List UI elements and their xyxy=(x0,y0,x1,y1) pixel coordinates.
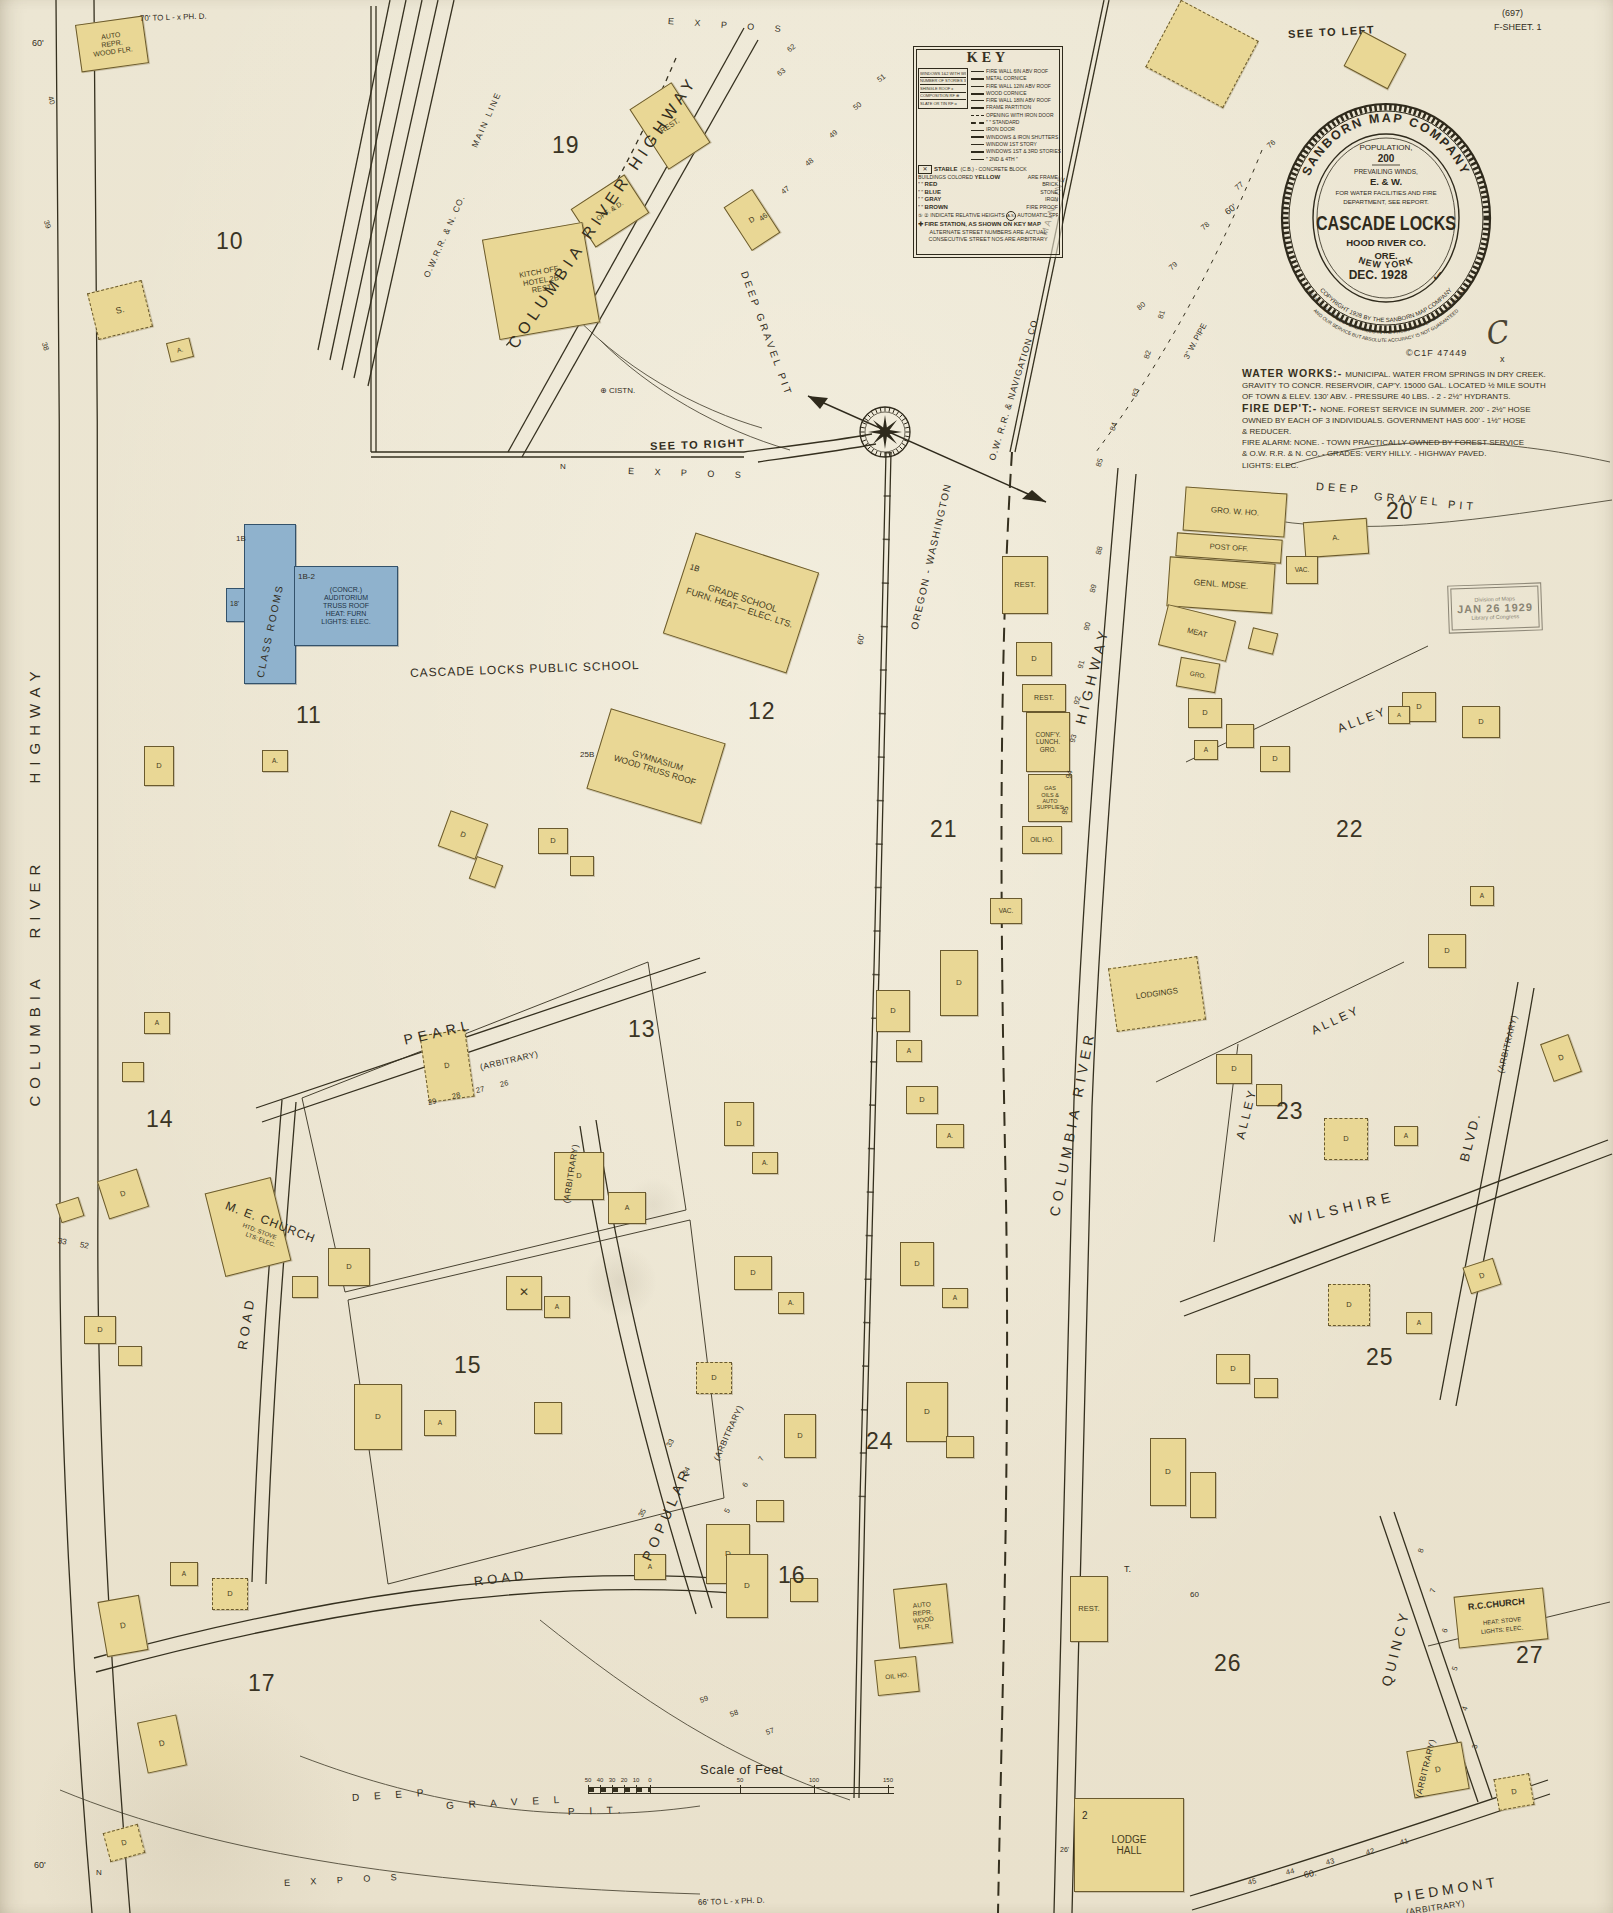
building: D xyxy=(1428,934,1466,968)
building xyxy=(570,856,594,876)
building-label: D xyxy=(711,1374,716,1383)
scale-tick xyxy=(814,1785,815,1794)
building xyxy=(1256,1084,1282,1106)
building: A xyxy=(424,1410,456,1436)
building xyxy=(756,1500,784,1522)
building-label: A xyxy=(1397,712,1401,719)
key-symbol-icon xyxy=(971,100,984,101)
key-symbol-icon xyxy=(971,122,984,124)
key-left-entry: NUMBER OF STORIES 3 xyxy=(920,78,966,86)
key-entry: ″ 2ND & 4TH ″ xyxy=(971,156,1061,163)
building-label: D xyxy=(550,837,555,846)
note-line: & REDUCER. xyxy=(1242,426,1576,437)
building-label: A. xyxy=(762,1159,768,1166)
building-label: D xyxy=(119,1621,126,1631)
building-label: D xyxy=(1416,703,1421,712)
building: D xyxy=(554,1152,604,1200)
key-symbol-icon xyxy=(971,78,984,80)
key-symbol-icon xyxy=(971,144,984,145)
building: A xyxy=(170,1562,198,1586)
building-label: D xyxy=(1478,718,1483,727)
scale-tick xyxy=(624,1785,625,1794)
building: D xyxy=(97,1168,149,1219)
key-symbol-table: WINDOWS 1&2 WITH WIRED GLASSNUMBER OF ST… xyxy=(918,68,968,163)
building: GENL. MDSE. xyxy=(1166,556,1275,613)
building xyxy=(946,1436,974,1458)
note-lead: FIRE DEP'T:- xyxy=(1242,402,1317,414)
building xyxy=(790,1578,818,1602)
building: (CONCR.)AUDITORIUMTRUSS ROOFHEAT: FURNLI… xyxy=(294,566,398,646)
key-entry: WINDOW 1ST STORY xyxy=(971,141,1061,148)
building-label: ✕ xyxy=(519,1286,529,1300)
building xyxy=(1248,627,1279,655)
building: D xyxy=(1016,642,1052,676)
key-symbol-icon xyxy=(971,151,984,153)
building xyxy=(1454,1587,1549,1648)
note-line: OF TOWN & ELEV. 130' ABV. - PRESSURE 40 … xyxy=(1242,391,1576,402)
scale-tick xyxy=(740,1785,741,1794)
sprinkler-symbol-icon: A.S. xyxy=(1006,211,1016,221)
key-title: KEY xyxy=(918,50,1058,66)
building-label: OFF. & D. xyxy=(595,199,625,222)
building: D xyxy=(1462,706,1500,738)
key-entry: FIRE WALL 6IN ABV ROOF xyxy=(971,68,1061,75)
building-label: LODGE xyxy=(1111,1834,1146,1846)
building-label: D xyxy=(1165,1467,1171,1476)
building: D xyxy=(1324,1118,1368,1160)
key-symbol-icon xyxy=(971,93,984,95)
building: A. xyxy=(1303,518,1369,558)
key-color-row: IRON″ ″ GRAY xyxy=(918,196,1058,204)
scale-tick-label: 50 xyxy=(585,1777,592,1783)
building: D xyxy=(876,990,910,1032)
building: AUTOREPR.WOODFLR. xyxy=(893,1583,953,1648)
building-label: A. xyxy=(947,1132,953,1139)
key-left-entry: SHINGLE ROOF x xyxy=(920,85,966,93)
building-label: A xyxy=(625,1204,630,1212)
building: A. xyxy=(262,750,288,772)
building: D xyxy=(900,1242,934,1286)
building xyxy=(118,1346,142,1366)
key-heights-nums: ⑤ ② xyxy=(918,213,929,219)
building-label: D xyxy=(1346,1301,1351,1310)
scale-tick xyxy=(650,1785,651,1794)
key-symbol-icon xyxy=(971,71,984,72)
note-line: FIRE DEP'T:-NONE. FOREST SERVICE IN SUMM… xyxy=(1242,403,1576,415)
building: LODGEHALL xyxy=(1074,1798,1184,1892)
building: D xyxy=(724,1102,754,1146)
building: REST. xyxy=(1002,556,1048,614)
building: REST. xyxy=(1022,684,1066,712)
building: A. xyxy=(936,1124,964,1148)
building: D xyxy=(328,1248,370,1286)
building: D xyxy=(734,1256,772,1290)
scale-tick-label: 0 xyxy=(648,1777,651,1783)
scale-tick-label: 100 xyxy=(809,1777,819,1783)
building: D xyxy=(1188,698,1222,728)
building-label: GRO. W. HO. xyxy=(1211,506,1260,519)
loc-stamp-line3: Library of Congress xyxy=(1471,613,1519,621)
building-label: D xyxy=(1444,947,1449,956)
building: REST. xyxy=(629,82,710,170)
building: D xyxy=(103,1824,146,1862)
scale-tick-label: 150 xyxy=(883,1777,893,1783)
building: D xyxy=(724,189,781,251)
building-label: D xyxy=(1478,1271,1486,1281)
building-label: D xyxy=(1511,1787,1518,1796)
note-line: GRAVITY TO CONCR. RESERVOIR, CAP'Y. 1500… xyxy=(1242,380,1576,391)
building-label: D xyxy=(956,978,962,987)
building-label: A xyxy=(438,1419,442,1426)
scale-tick-label: 40 xyxy=(597,1777,604,1783)
building: D xyxy=(1216,1054,1252,1084)
building: AUTOREPR.WOOD FLR. xyxy=(75,16,149,73)
building: ✕ xyxy=(506,1276,542,1310)
building xyxy=(244,524,296,684)
key-entry: FIRE WALL 18IN ABV ROOF xyxy=(971,97,1061,104)
building-label: A xyxy=(953,1294,957,1301)
building-label: D xyxy=(444,1061,451,1070)
key-heights: INDICATE RELATIVE HEIGHTS xyxy=(930,213,1004,219)
note-line: FIRE ALARM: NONE. - TOWN PRACTICALLY OWN… xyxy=(1242,437,1576,448)
building-label: D xyxy=(924,1407,930,1416)
building-label: MEAT xyxy=(1186,626,1208,639)
building: D xyxy=(538,828,568,854)
scale-tick xyxy=(588,1785,589,1794)
building: KITCH OFF.HOTEL 2BREST. xyxy=(482,222,600,340)
building-label: S. xyxy=(115,304,126,316)
building-label: D xyxy=(919,1096,924,1105)
water-fire-notes: WATER WORKS:-MUNICIPAL. WATER FROM SPRIN… xyxy=(1242,368,1576,471)
building: D xyxy=(1540,1034,1582,1082)
building xyxy=(534,1402,562,1434)
key-symbol-icon xyxy=(971,159,984,160)
building-label: D xyxy=(1343,1135,1348,1144)
building: A xyxy=(1394,1126,1418,1146)
building: D xyxy=(726,1554,768,1618)
key-color-row: STONE″ ″ BLUE xyxy=(918,189,1058,197)
building xyxy=(292,1276,318,1298)
building: A xyxy=(1406,1312,1432,1334)
fire-station-cross-icon: ✚ xyxy=(918,221,923,227)
building: GRO. W. HO. xyxy=(1183,486,1288,537)
building: GYMNASIUMWOOD TRUSS ROOF xyxy=(586,708,725,823)
building-label: SUPPLIES xyxy=(1037,804,1064,810)
building-label: A xyxy=(907,1047,911,1054)
key-left-entry: WINDOWS 1&2 WITH WIRED GLASS xyxy=(920,70,966,78)
building-label: D xyxy=(1272,755,1277,764)
scale-bar: 5040302010050100150 xyxy=(588,1778,894,1796)
scale-tick xyxy=(612,1785,613,1794)
building-label: FLR. xyxy=(917,1623,932,1632)
building-label: A xyxy=(1204,746,1208,753)
building xyxy=(55,1197,84,1223)
building: A xyxy=(1388,706,1410,724)
key-entry: FRAME PARTITION xyxy=(971,104,1061,111)
scale-tick-label: 30 xyxy=(609,1777,616,1783)
building xyxy=(122,1062,144,1082)
building: D xyxy=(1260,746,1290,772)
building: VAC. xyxy=(1286,556,1318,584)
note-line: OWNED BY EACH OF 3 INDIVIDUALS. GOVERNME… xyxy=(1242,415,1576,426)
building-label: OIL HO. xyxy=(885,1671,909,1681)
building: A xyxy=(896,1040,922,1062)
building xyxy=(1145,0,1258,108)
key-symbol-icon xyxy=(971,86,984,87)
building-label: D xyxy=(797,1432,802,1441)
building-label: D xyxy=(97,1326,102,1335)
building: D xyxy=(144,746,174,786)
building-label: LIGHTS: ELEC. xyxy=(321,618,370,626)
building-label: WOOD FLR. xyxy=(93,45,133,58)
building: D xyxy=(354,1384,402,1450)
note-line: WATER WORKS:-MUNICIPAL. WATER FROM SPRIN… xyxy=(1242,368,1576,380)
note-line: LIGHTS: ELEC. xyxy=(1242,460,1576,471)
building-label: A xyxy=(1417,1319,1421,1326)
scale-tick xyxy=(636,1785,637,1794)
key-entry: ″ ″ STANDARD xyxy=(971,119,1061,126)
building-label: GRO. xyxy=(1040,746,1057,753)
building: D xyxy=(1150,1438,1186,1506)
building: A. xyxy=(778,1292,804,1314)
building-label: D xyxy=(459,830,467,840)
building-label: D xyxy=(1031,655,1036,664)
building-label: TRUSS ROOF xyxy=(323,602,369,610)
building-label: A. xyxy=(272,757,278,764)
scale-tick-label: 10 xyxy=(633,1777,640,1783)
map-key-legend: KEY WINDOWS 1&2 WITH WIRED GLASSNUMBER O… xyxy=(913,46,1063,258)
building-label: D xyxy=(158,1739,166,1749)
building xyxy=(469,856,504,888)
building: D xyxy=(1462,1258,1501,1295)
key-sprinklers: AUTOMATIC SPRINKLERS xyxy=(1017,213,1058,219)
building: OIL HO. xyxy=(874,1656,920,1696)
building-label: D xyxy=(576,1172,581,1181)
building: D xyxy=(784,1414,816,1458)
building-label: D xyxy=(156,762,161,771)
building-label: HALL xyxy=(1116,1845,1141,1857)
building-label: GENL. MDSE. xyxy=(1193,578,1248,592)
building: D xyxy=(1493,1773,1534,1811)
building xyxy=(205,1177,292,1277)
building xyxy=(1254,1378,1278,1398)
building-label: A xyxy=(1480,892,1484,899)
buildings-layer: AUTOREPR.WOOD FLR.S.A.REST.OFF. & D.KITC… xyxy=(0,0,1613,1913)
building: D xyxy=(1406,1742,1469,1799)
building: OIL HO. xyxy=(1022,826,1062,854)
key-color-row: ARE FRAMEBUILDINGS COLORED YELLOW xyxy=(918,174,1058,182)
building: D xyxy=(212,1578,248,1610)
key-entry: OPENING WITH IRON DOOR xyxy=(971,112,1061,119)
building-label: REST. xyxy=(659,117,682,136)
library-of-congress-stamp: Division of Maps JAN 26 1929 Library of … xyxy=(1447,582,1543,633)
key-stable: STABLE xyxy=(934,166,958,172)
building-label: LUNCH. xyxy=(1036,738,1060,745)
building-label: D xyxy=(1231,1065,1236,1074)
building-label: A xyxy=(555,1303,559,1310)
key-symbol-icon xyxy=(971,115,984,116)
key-bottom-section: ✕STABLE (C.B.) - CONCRETE BLOCK ARE FRAM… xyxy=(918,165,1058,244)
building: D xyxy=(696,1362,732,1394)
scale-tick xyxy=(600,1785,601,1794)
building-label: D xyxy=(120,1838,127,1848)
key-consec-note: CONSECUTIVE STREET NOS ARE ARBITRARY xyxy=(918,236,1058,244)
building: GRADE SCHOOLFURN. HEAT— ELEC. LTS. xyxy=(663,533,819,674)
building: D xyxy=(1216,1354,1250,1384)
building: D xyxy=(1328,1284,1370,1326)
building: A xyxy=(634,1554,666,1580)
key-left-entry: COMPOSITION RF ⊕ xyxy=(920,93,966,101)
building: VAC. xyxy=(990,898,1022,924)
building-label: OIL HO. xyxy=(1030,836,1054,843)
building: A xyxy=(544,1296,570,1318)
building-label: GRO. xyxy=(1189,670,1207,680)
building-label: A. xyxy=(176,346,184,355)
building-label: D xyxy=(1434,1765,1441,1775)
building-label: (CONCR.) xyxy=(330,586,362,594)
key-symbol-icon xyxy=(971,136,984,138)
building: S. xyxy=(87,280,153,340)
key-alt-note: ALTERNATE STREET NUMBERS ARE ACTUAL xyxy=(918,229,1058,237)
building-label: A xyxy=(1404,1132,1408,1139)
building-label: AUDITORIUM xyxy=(324,594,368,602)
key-color-row: FIRE PROOF″ ″ BROWN xyxy=(918,204,1058,212)
loc-stamp-line1: Division of Maps xyxy=(1474,595,1515,602)
building: A xyxy=(608,1192,646,1224)
key-entry: IRON DOOR xyxy=(971,126,1061,133)
building-label: VAC. xyxy=(1295,566,1310,573)
building: D xyxy=(438,810,489,859)
building: D xyxy=(906,1382,948,1442)
building-label: D xyxy=(119,1189,127,1199)
key-entry: METAL CORNICE xyxy=(971,75,1061,82)
loc-stamp-date: JAN 26 1929 xyxy=(1457,601,1533,616)
building: CONF'Y.LUNCH.GRO. xyxy=(1026,712,1070,772)
scale-tick-label: 20 xyxy=(621,1777,628,1783)
building: D xyxy=(906,1086,938,1114)
building: A xyxy=(1470,886,1494,906)
building: A xyxy=(942,1288,968,1308)
building-label: A xyxy=(648,1563,652,1570)
building-label: REST. xyxy=(1034,694,1054,702)
key-entry: WOOD CORNICE xyxy=(971,90,1061,97)
key-entry: WINDOWS & IRON SHUTTERS xyxy=(971,134,1061,141)
building-label: A. xyxy=(788,1299,794,1306)
key-color-legend: ARE FRAMEBUILDINGS COLORED YELLOWBRICK″ … xyxy=(918,174,1058,212)
building xyxy=(1344,31,1407,90)
stable-symbol-icon: ✕ xyxy=(918,165,932,174)
building-label: REST. xyxy=(531,283,553,295)
key-color-row: BRICK″ ″ RED xyxy=(918,181,1058,189)
building-label: A xyxy=(155,1019,159,1026)
building: D xyxy=(84,1316,116,1344)
building: A. xyxy=(166,337,194,362)
building-label: D xyxy=(890,1007,895,1016)
building-label: D xyxy=(750,1269,755,1278)
building-label: A xyxy=(182,1570,186,1577)
building-label: D xyxy=(1557,1053,1565,1063)
building-label: D xyxy=(227,1590,232,1599)
building-label: D xyxy=(914,1260,919,1269)
building-label: CONF'Y. xyxy=(1036,731,1061,738)
building-label: REST. xyxy=(1078,1605,1099,1614)
building-label: LODGINGS xyxy=(1135,987,1178,1002)
key-entries: FIRE WALL 6IN ABV ROOFMETAL CORNICEFIRE … xyxy=(968,68,1061,163)
building-label: D xyxy=(375,1412,381,1421)
building: A. xyxy=(752,1152,778,1174)
building: D xyxy=(137,1714,187,1773)
building: D xyxy=(419,1029,474,1103)
scale-tick-label: 50 xyxy=(737,1777,744,1783)
building-label: D xyxy=(346,1263,351,1272)
building-label: POST OFF. xyxy=(1209,542,1248,553)
key-cb: (C.B.) - CONCRETE BLOCK xyxy=(960,166,1026,172)
building: REST. xyxy=(1070,1576,1108,1642)
building-label: VAC. xyxy=(999,907,1014,914)
scale-tick xyxy=(888,1785,889,1794)
building-label: REST. xyxy=(1014,581,1035,590)
building: A xyxy=(144,1012,170,1034)
building xyxy=(1226,724,1254,748)
key-symbol-icon xyxy=(971,130,984,131)
note-lead: WATER WORKS:- xyxy=(1242,367,1342,379)
building-label: D xyxy=(736,1120,741,1129)
building: A xyxy=(1194,740,1218,760)
key-left-entry: SLATE OR TIN RF o xyxy=(920,100,966,107)
building: D xyxy=(97,1595,148,1657)
building-label: D xyxy=(1230,1365,1235,1374)
building: D xyxy=(940,950,978,1016)
building: GRO. xyxy=(1176,657,1221,693)
building-label: D xyxy=(744,1581,750,1590)
building xyxy=(1190,1472,1216,1518)
building: MEAT xyxy=(1158,604,1236,662)
key-entry: FIRE WALL 12IN ABV ROOF xyxy=(971,83,1061,90)
building-label: A. xyxy=(1332,533,1340,542)
building: GASOILS &AUTOSUPPLIES xyxy=(1028,774,1072,822)
key-entry: WINDOWS 1ST & 3RD STORIES xyxy=(971,148,1061,155)
note-line: & O.W. R.R. & N. CO. - GRADES: VERY HILL… xyxy=(1242,448,1576,459)
key-symbol-icon xyxy=(971,107,984,109)
building: LODGINGS xyxy=(1108,956,1206,1032)
key-fire-station: FIRE STATION, AS SHOWN ON KEY MAP xyxy=(924,221,1040,227)
building-label: D xyxy=(1202,709,1207,718)
building-label: HEAT: FURN xyxy=(326,610,367,618)
building-label: D xyxy=(747,215,756,225)
sanborn-map-sheet: SANBORN MAP COMPANY POPULATION, 200 PREV… xyxy=(0,0,1613,1913)
